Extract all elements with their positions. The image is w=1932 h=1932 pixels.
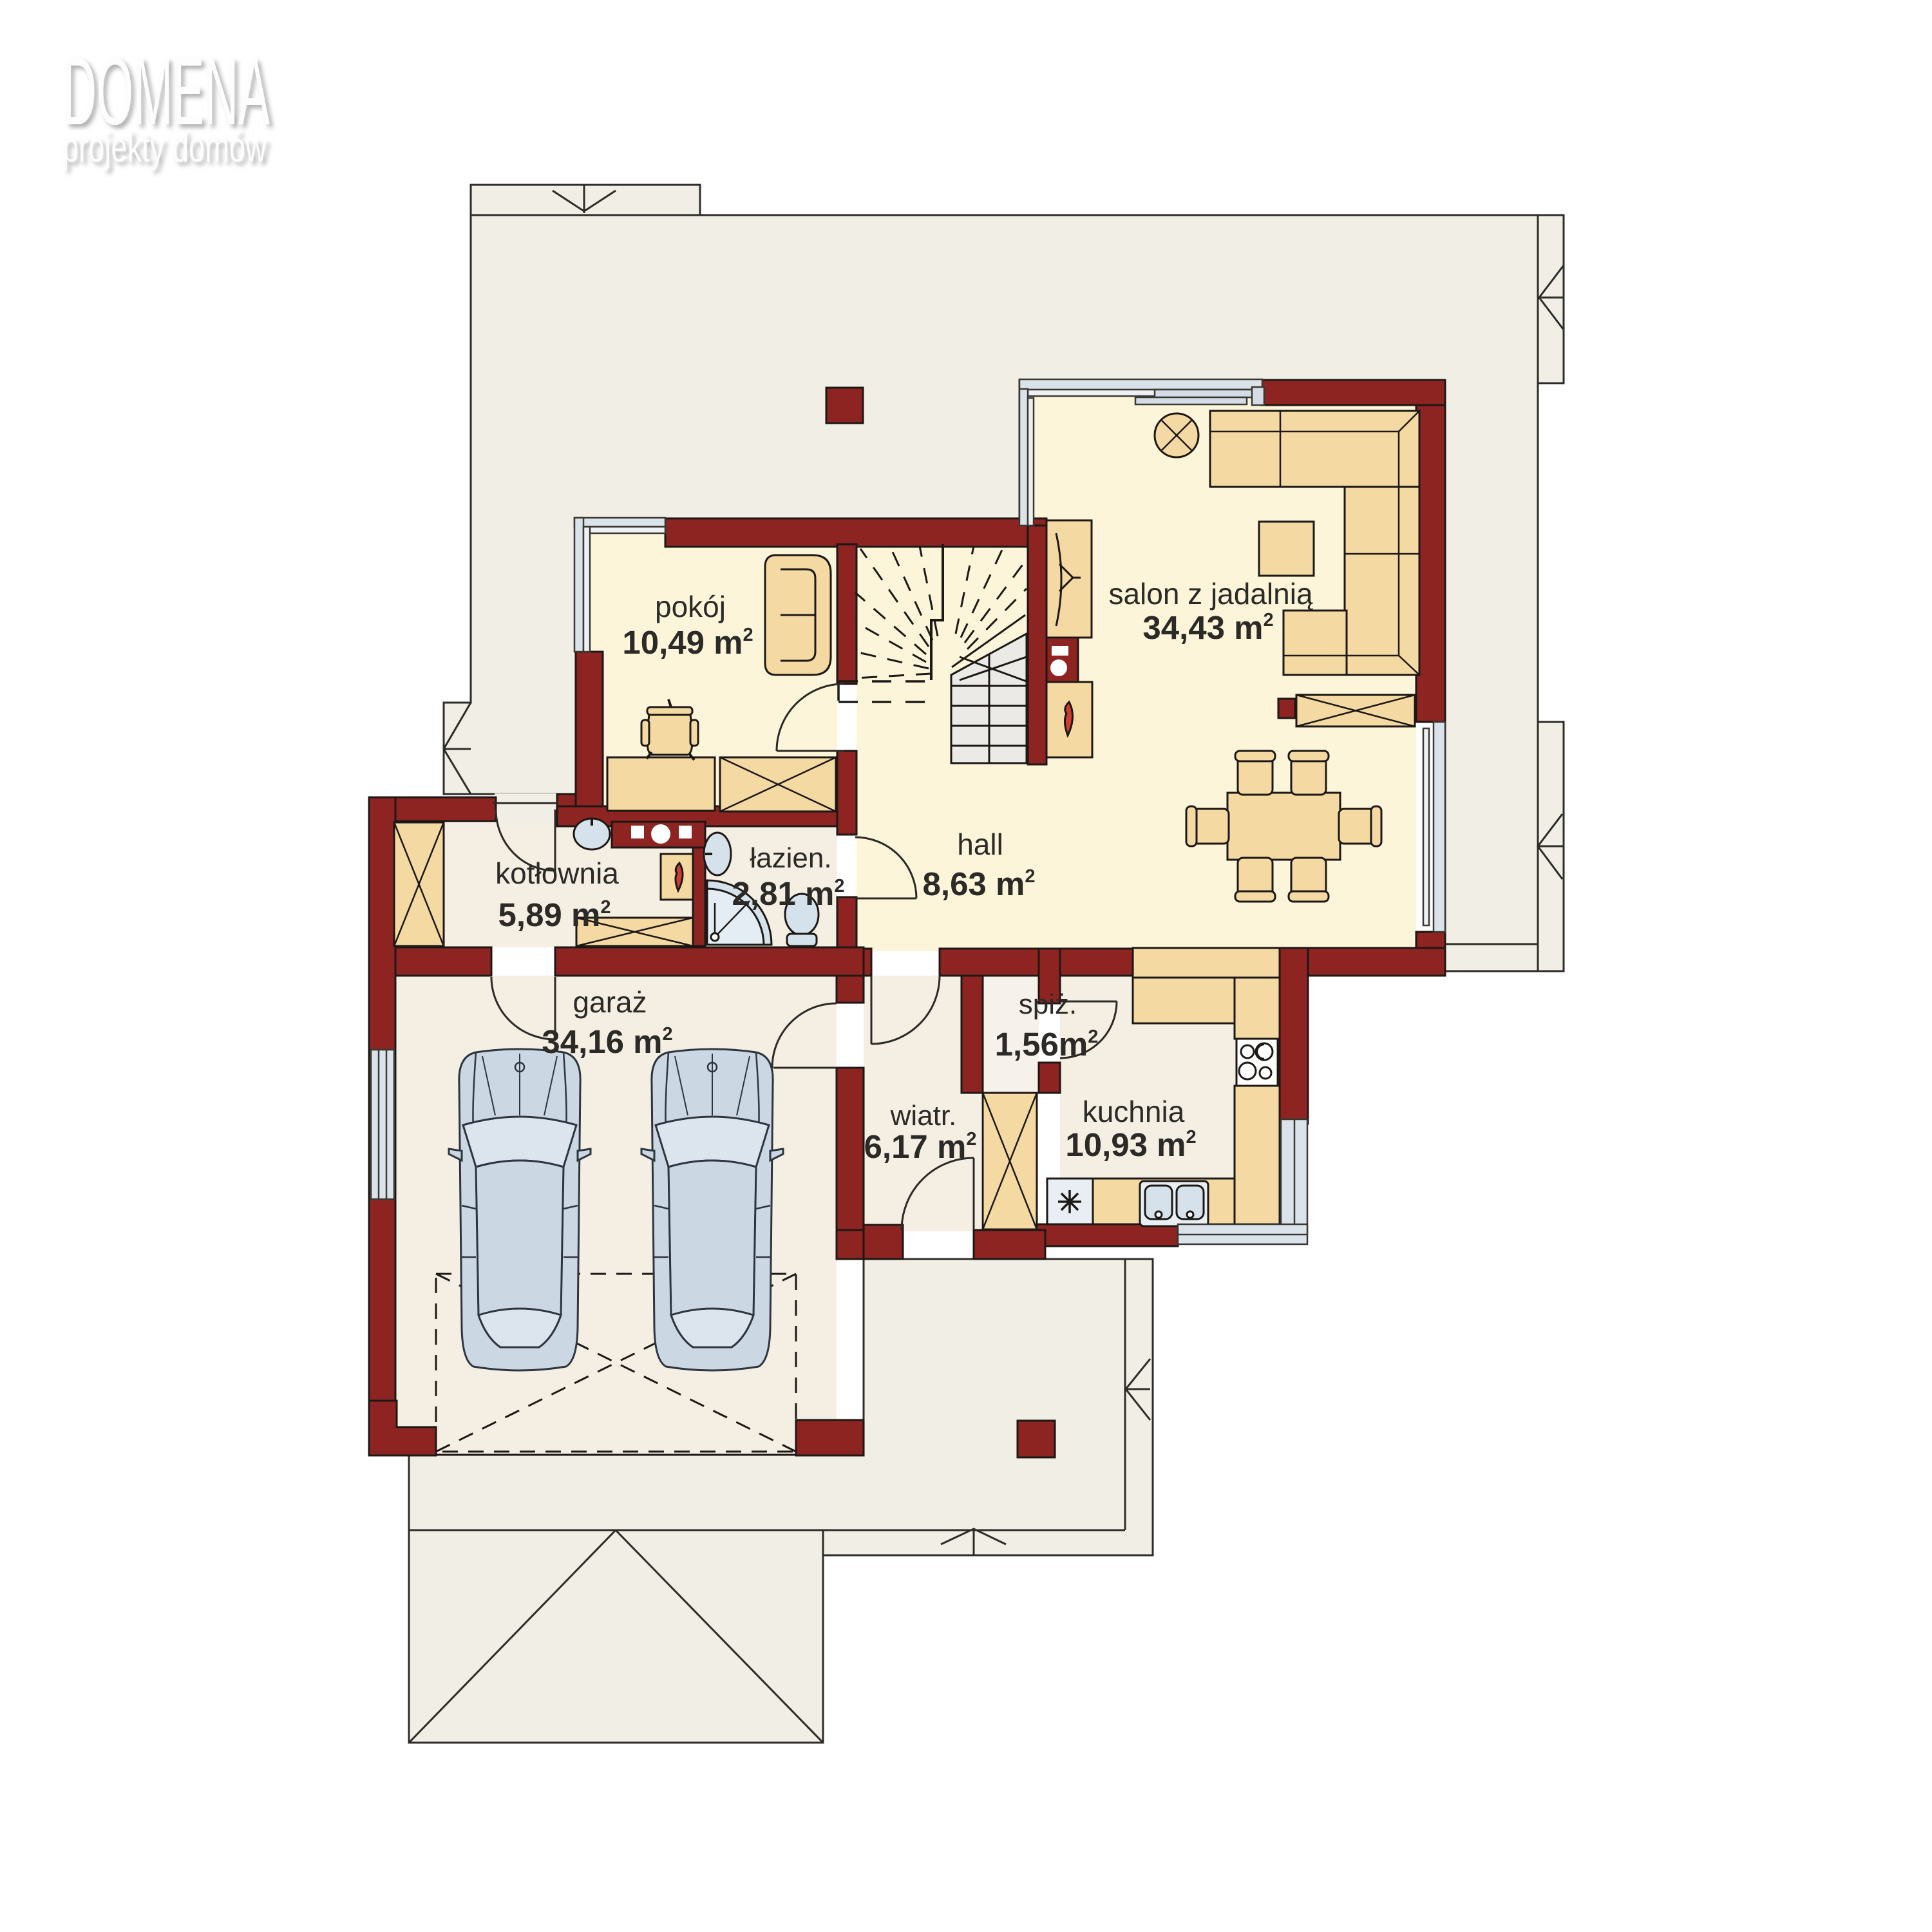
svg-text:34,16 m2: 34,16 m2 <box>542 1023 672 1060</box>
svg-text:łazien.: łazien. <box>750 842 831 874</box>
svg-text:wiatr.: wiatr. <box>890 1100 957 1132</box>
svg-text:spiż.: spiż. <box>1019 989 1077 1020</box>
svg-text:salon z jadalnią: salon z jadalnią <box>1108 577 1313 611</box>
svg-text:2,81 m2: 2,81 m2 <box>732 875 845 912</box>
svg-text:10,93 m2: 10,93 m2 <box>1065 1126 1196 1163</box>
svg-text:1,56m2: 1,56m2 <box>995 1026 1099 1063</box>
svg-text:projekty domów: projekty domów <box>62 124 267 171</box>
svg-text:kotłownia: kotłownia <box>495 857 619 890</box>
svg-text:10,49 m2: 10,49 m2 <box>622 624 753 661</box>
svg-text:hall: hall <box>957 828 1003 861</box>
svg-text:8,63 m2: 8,63 m2 <box>923 866 1036 902</box>
svg-text:garaż: garaż <box>573 985 647 1019</box>
svg-text:6,17 m2: 6,17 m2 <box>864 1128 977 1165</box>
svg-text:34,43 m2: 34,43 m2 <box>1142 609 1273 646</box>
svg-text:pokój: pokój <box>655 590 726 623</box>
svg-text:5,89 m2: 5,89 m2 <box>498 896 611 933</box>
svg-text:kuchnia: kuchnia <box>1083 1095 1185 1128</box>
